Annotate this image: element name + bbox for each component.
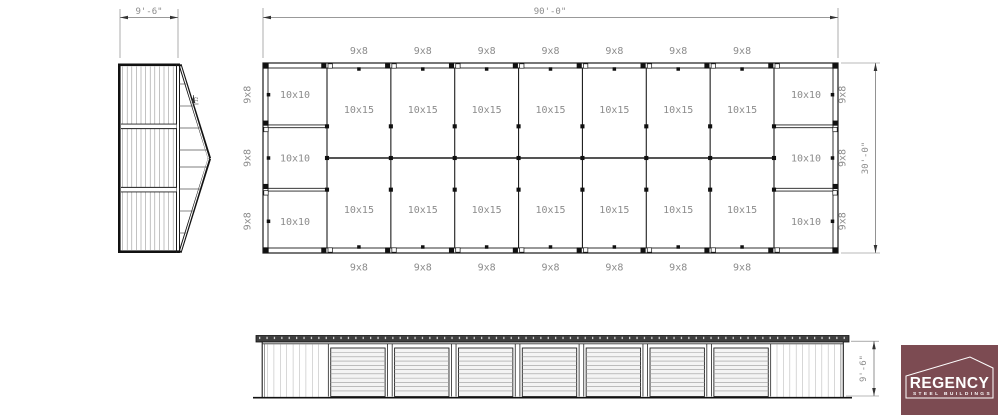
column-marker [456,248,460,252]
roof-rib-tick [821,337,822,339]
roof-rib-tick [474,337,475,339]
dim-arrow [263,16,271,20]
unit-label: 10x10 [280,154,310,165]
end-wall-edge [118,64,180,67]
roof-rib-tick [651,337,652,339]
roof-rib-tick [437,337,438,339]
column-marker [641,248,645,252]
dim-arrow [120,16,128,20]
roof-rib-tick [400,337,401,339]
door-size-label: 9x8 [733,46,751,57]
column-marker [831,220,834,223]
column-marker [517,188,520,191]
roof-rib-tick [311,337,312,339]
column-marker [831,93,834,96]
logo-tagline-text: STEEL BUILDINGS [904,393,1000,398]
column-marker [449,64,453,68]
column-marker [328,64,332,68]
roof-rib-tick [659,337,660,339]
unit-label: 10x15 [408,205,438,216]
column-marker [833,184,837,188]
roof-rib-tick [385,337,386,339]
column-marker [641,64,645,68]
column-marker [328,248,332,252]
column-marker [513,248,517,252]
dim-end-height: 9'-6" [135,7,162,17]
unit-label: 10x15 [599,205,629,216]
column-marker [453,188,456,191]
door-size-label: 9x8 [243,212,254,230]
column-marker [833,248,838,253]
roof-rib-tick [762,337,763,339]
roof-rib-tick [503,337,504,339]
column-marker [264,64,269,69]
regency-logo: REGENCY STEEL BUILDINGS [901,345,998,415]
roof-rib-tick [525,337,526,339]
roof-rib-tick [570,337,571,339]
door-size-label: 9x8 [605,46,623,57]
unit-label: 10x10 [280,90,310,101]
roof-rib-tick [770,337,771,339]
roof-rib-tick [496,337,497,339]
roof-rib-tick [585,337,586,339]
roof-rib-tick [392,337,393,339]
drawing-sheet: 10x1010x1010x1010x1010x1010x1010x1510x15… [0,0,1000,416]
column-marker [517,125,520,128]
roof-rib-tick [326,337,327,339]
rollup-door [650,348,704,397]
column-marker [513,64,517,68]
roof-rib-tick [607,337,608,339]
roof-rib-tick [274,337,275,339]
unit-label: 10x15 [344,205,374,216]
logo-brand-text: REGENCY [901,376,998,392]
column-marker [325,125,328,128]
door-size-label: 9x8 [350,46,368,57]
unit-label: 10x10 [791,90,821,101]
roof-rib-tick [696,337,697,339]
column-marker [613,246,616,249]
roof-rib-tick [318,337,319,339]
column-marker [708,188,711,191]
roof-rib-tick [422,337,423,339]
column-marker [549,68,552,71]
column-marker [520,64,524,68]
roof-rib-tick [333,337,334,339]
roof-rib-tick [681,337,682,339]
column-marker [267,93,270,96]
column-marker [581,125,584,128]
column-marker [517,156,520,159]
column-marker [264,248,269,253]
roof-rib-tick [466,337,467,339]
roof-slope-gap [181,159,209,251]
column-marker [741,68,744,71]
dim-arrow [874,245,878,253]
roof-rib-tick [792,337,793,339]
door-size-label: 9x8 [838,149,849,167]
roof-rib-tick [363,337,364,339]
column-marker [267,157,270,160]
column-marker [267,220,270,223]
unit-label: 10x15 [599,105,629,116]
door-size-label: 9x8 [541,263,559,274]
roof-rib-tick [592,337,593,339]
roof-rib-tick [555,337,556,339]
column-marker [711,64,715,68]
column-marker [264,121,268,125]
dim-overall-depth: 30'-0" [861,142,871,175]
dim-arrow [872,388,876,396]
roof-rib-tick [562,337,563,339]
roof-rib-tick [296,337,297,339]
column-marker [677,246,680,249]
pitch-label: 12 [194,97,200,103]
column-marker [772,156,775,159]
roof-band [256,336,849,343]
end-wall-edge [118,250,180,253]
blueprint-linework: 10x1010x1010x1010x1010x1010x1010x1510x15… [0,0,1000,416]
column-marker [677,68,680,71]
roof-rib-tick [548,337,549,339]
roof-rib-tick [636,337,637,339]
roof-rib-tick [814,337,815,339]
roof-rib-tick [829,337,830,339]
roof-rib-tick [599,337,600,339]
column-marker [577,64,581,68]
column-marker [520,248,524,252]
unit-label: 10x15 [344,105,374,116]
unit-label: 10x10 [791,154,821,165]
column-marker [645,125,648,128]
roof-rib-tick [370,337,371,339]
door-size-label: 9x8 [243,86,254,104]
roof-rib-tick [340,337,341,339]
column-marker [705,248,709,252]
column-marker [421,246,424,249]
door-size-label: 9x8 [733,263,751,274]
column-marker [389,188,392,191]
roof-rib-tick [725,337,726,339]
door-size-label: 9x8 [605,263,623,274]
column-marker [385,248,389,252]
door-size-label: 9x8 [669,46,687,57]
roof-rib-tick [644,337,645,339]
column-marker [833,121,837,125]
roof-rib-tick [614,337,615,339]
column-marker [705,64,709,68]
column-marker [392,64,396,68]
roof-rib-tick [577,337,578,339]
roof-rib-tick [281,337,282,339]
column-marker [577,248,581,252]
column-marker [772,188,775,191]
door-size-label: 9x8 [350,263,368,274]
column-marker [711,248,715,252]
column-marker [322,64,326,68]
door-size-label: 9x8 [414,46,432,57]
roof-rib-tick [444,337,445,339]
roof-rib-tick [303,337,304,339]
roof-rib-tick [688,337,689,339]
girt-band [121,124,177,129]
dim-arrow [830,16,838,20]
roof-rib-tick [666,337,667,339]
roof-rib-tick [844,337,845,339]
column-marker [456,64,460,68]
rollup-door [395,348,449,397]
column-marker [358,246,361,249]
column-marker [358,68,361,71]
unit-label: 10x10 [791,217,821,228]
column-marker [647,248,651,252]
door-size-label: 9x8 [414,263,432,274]
column-marker [833,64,838,69]
unit-label: 10x15 [472,105,502,116]
unit-label: 10x15 [727,205,757,216]
roof-rib-tick [703,337,704,339]
rollup-door [331,348,385,397]
roof-rib-tick [259,337,260,339]
roof-rib-tick [747,337,748,339]
column-marker [264,184,268,188]
roof-rib-tick [459,337,460,339]
roof-rib-tick [511,337,512,339]
door-size-label: 9x8 [478,263,496,274]
door-size-label: 9x8 [669,263,687,274]
column-marker [264,127,268,131]
unit-label: 10x10 [280,217,310,228]
column-marker [549,246,552,249]
column-marker [421,68,424,71]
roof-rib-tick [266,337,267,339]
door-size-label: 9x8 [243,149,254,167]
unit-label: 10x15 [535,105,565,116]
column-marker [775,248,779,252]
roof-rib-tick [451,337,452,339]
roof-rib-tick [348,337,349,339]
roof-rib-tick [777,337,778,339]
dim-arrow [872,341,876,349]
column-marker [325,188,328,191]
roof-rib-tick [533,337,534,339]
column-marker [453,156,456,159]
roof-rib-tick [540,337,541,339]
roof-rib-tick [629,337,630,339]
unit-label: 10x15 [408,105,438,116]
column-marker [583,64,587,68]
column-marker [322,248,326,252]
column-marker [645,188,648,191]
door-size-label: 9x8 [838,86,849,104]
column-marker [613,68,616,71]
roof-rib-tick [355,337,356,339]
column-marker [264,191,268,195]
column-marker [485,68,488,71]
column-marker [389,125,392,128]
column-marker [392,248,396,252]
unit-label: 10x15 [663,105,693,116]
dim-arrow [874,63,878,71]
roof-rib-tick [429,337,430,339]
rollup-door [522,348,576,397]
rollup-door [586,348,640,397]
column-marker [741,246,744,249]
roof-rib-tick [673,337,674,339]
dim-elev-height: 9'-6" [859,355,869,382]
column-marker [453,125,456,128]
roof-rib-tick [836,337,837,339]
column-marker [775,64,779,68]
roof-rib-tick [710,337,711,339]
roof-rib-tick [733,337,734,339]
column-marker [581,156,584,159]
roof-rib-tick [807,337,808,339]
column-marker [772,125,775,128]
column-marker [389,156,392,159]
roof-rib-tick [622,337,623,339]
column-marker [769,248,773,252]
column-marker [708,156,711,159]
column-marker [325,156,328,159]
column-marker [583,248,587,252]
roof-slope-gap [181,66,209,158]
end-wall-edge [118,64,121,254]
column-marker [647,64,651,68]
girt-band [121,187,177,192]
column-marker [708,125,711,128]
door-size-label: 9x8 [838,212,849,230]
roof-rib-tick [740,337,741,339]
roof-rib-tick [289,337,290,339]
door-size-label: 9x8 [541,46,559,57]
column-marker [833,127,837,131]
unit-label: 10x15 [727,105,757,116]
column-marker [485,246,488,249]
roof-rib-tick [518,337,519,339]
column-marker [833,191,837,195]
roof-rib-tick [407,337,408,339]
rollup-door [458,348,512,397]
roof-rib-tick [414,337,415,339]
column-marker [831,157,834,160]
column-marker [769,64,773,68]
column-marker [385,64,389,68]
rollup-door [714,348,768,397]
column-marker [449,248,453,252]
roof-rib-tick [755,337,756,339]
unit-label: 10x15 [472,205,502,216]
dim-overall-width: 90'-0" [534,7,567,17]
roof-rib-tick [799,337,800,339]
unit-label: 10x15 [535,205,565,216]
roof-rib-tick [377,337,378,339]
dim-arrow [170,16,178,20]
column-marker [581,188,584,191]
door-size-label: 9x8 [478,46,496,57]
column-marker [645,156,648,159]
unit-label: 10x15 [663,205,693,216]
roof-rib-tick [488,337,489,339]
roof-rib-tick [784,337,785,339]
roof-rib-tick [718,337,719,339]
roof-rib-tick [481,337,482,339]
